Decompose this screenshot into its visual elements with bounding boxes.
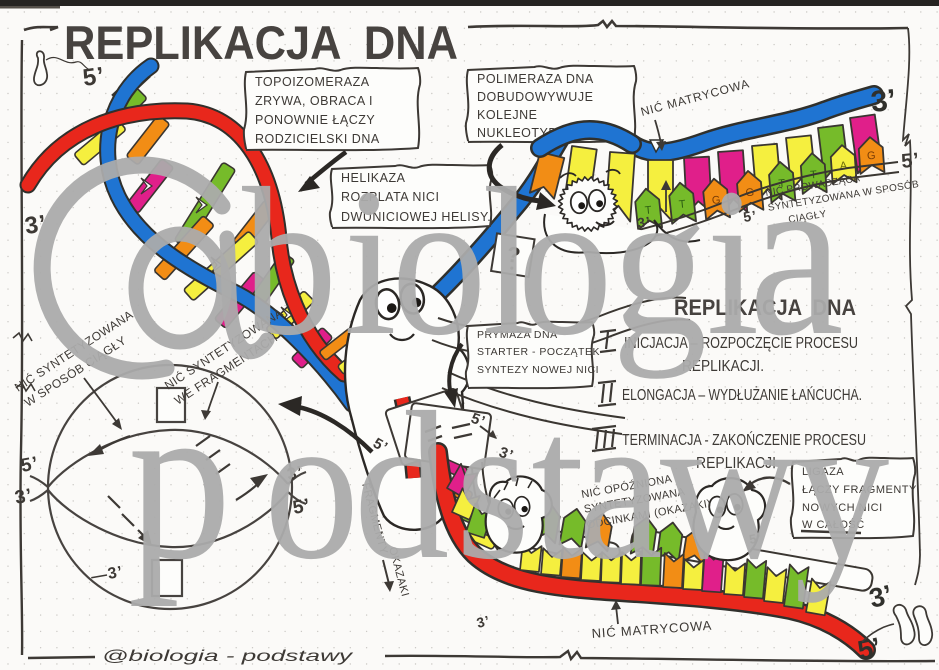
svg-text:biologia: biologia (242, 121, 844, 385)
svg-text:POLIMERAZA DNA: POLIMERAZA DNA (477, 72, 594, 86)
svg-text:3’: 3’ (869, 84, 897, 119)
svg-text:KOLEJNE: KOLEJNE (477, 108, 537, 122)
svg-text:@biologia - podstawy: @biologia - podstawy (102, 648, 354, 665)
svg-text:DOBUDOWYWUJE: DOBUDOWYWUJE (477, 90, 593, 104)
svg-text:ZRYWA, OBRACA I: ZRYWA, OBRACA I (255, 94, 373, 108)
svg-text:TOPOIZOMERAZA: TOPOIZOMERAZA (255, 75, 370, 89)
svg-text:5’: 5’ (900, 149, 921, 173)
svg-text:G: G (867, 150, 876, 163)
svg-text:PONOWNIE ŁĄCZY: PONOWNIE ŁĄCZY (255, 113, 375, 127)
svg-text:5’: 5’ (81, 62, 107, 92)
svg-text:REPLIKACJA DNA: REPLIKACJA DNA (64, 16, 458, 69)
svg-text:3’: 3’ (13, 485, 34, 509)
svg-text:5’: 5’ (19, 453, 40, 477)
